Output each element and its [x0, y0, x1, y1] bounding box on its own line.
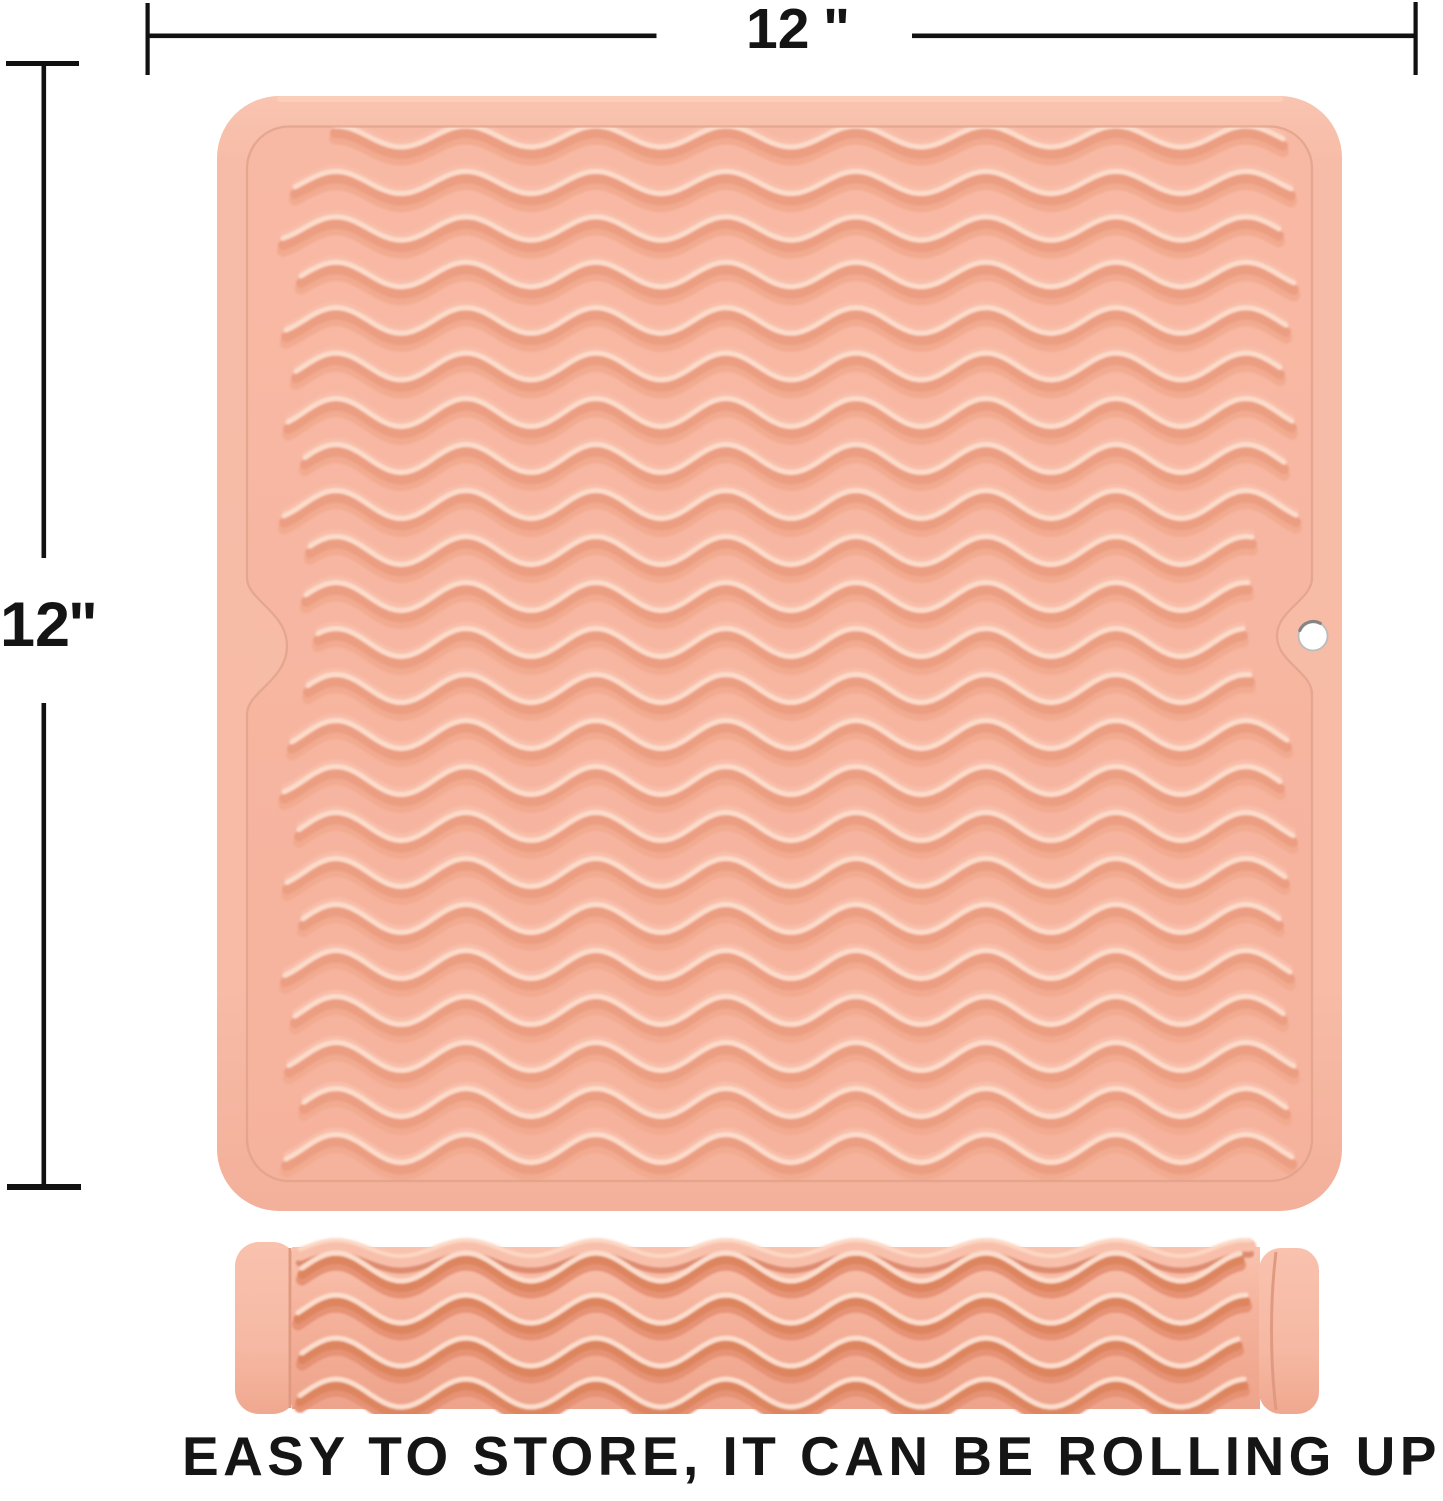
- svg-text:12: 12: [0, 590, 70, 660]
- svg-text:EASY TO STORE, IT CAN BE ROLLI: EASY TO STORE, IT CAN BE ROLLING UP: [182, 1425, 1441, 1487]
- svg-text:": ": [68, 590, 98, 660]
- svg-text:12: 12: [746, 0, 809, 61]
- svg-text:": ": [823, 0, 850, 61]
